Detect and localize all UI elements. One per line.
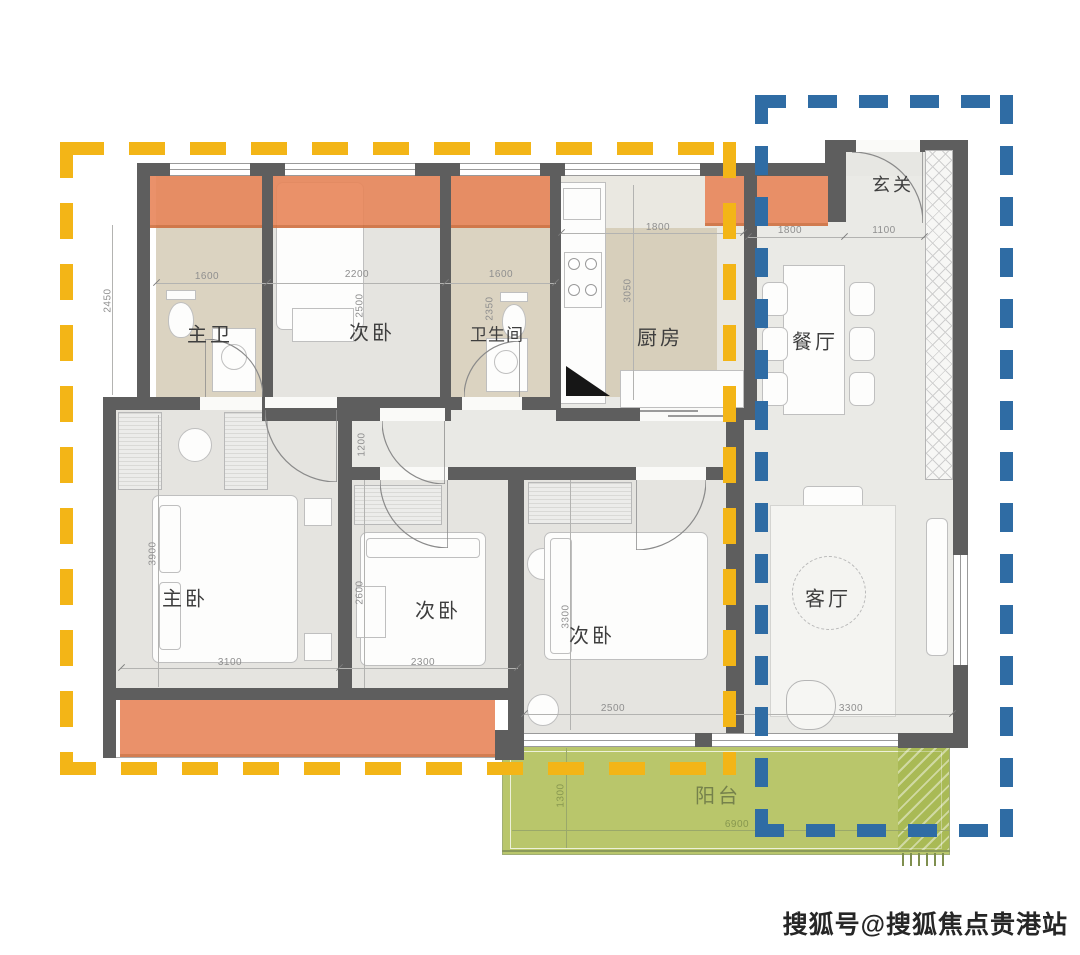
bedroomright-door-arc — [636, 480, 706, 550]
blue-zone-right-edge — [1000, 95, 1013, 837]
label-kitchen: 厨房 — [637, 322, 683, 351]
living-sofa — [926, 518, 948, 656]
bedroom-right-washer-2 — [527, 694, 559, 726]
wall-left-jog — [103, 397, 150, 410]
label-master-bath: 主卫 — [187, 319, 233, 348]
dim-living-width: 3300 — [826, 703, 876, 714]
dim-kitchen-height: 3050 — [623, 266, 634, 316]
stove-burner-1 — [568, 258, 580, 270]
blue-zone-top-edge — [757, 95, 1013, 108]
dim-entry-width-2: 1100 — [859, 225, 909, 236]
window-bedroomright-balcony — [524, 733, 695, 747]
master-bath-toilet-tank — [166, 290, 196, 300]
wall-left-main — [103, 410, 116, 758]
bedroommid-door-arc — [380, 480, 448, 548]
bathroom-door-opening — [462, 397, 522, 410]
blue-zone-left-edge — [755, 95, 768, 837]
orange-band-bottom — [120, 697, 495, 757]
masterbed-door-arc — [265, 410, 337, 482]
label-entry: 玄关 — [872, 171, 914, 197]
yellow-zone-right-edge — [723, 142, 736, 775]
label-balcony: 阳台 — [695, 780, 741, 809]
wall-bedroommid-bedroomright — [508, 467, 524, 690]
dim-masterbed-width: 3100 — [205, 657, 255, 668]
dim-entry-width-1: 1800 — [765, 225, 815, 236]
dining-chair-6 — [849, 372, 875, 406]
bedroomtop-door-arc — [382, 421, 445, 484]
dim-kitchen-width: 1800 — [633, 222, 683, 233]
wall-left-top — [137, 163, 150, 397]
yellow-zone-left-edge — [60, 142, 73, 775]
dim-bathroom-width: 1600 — [476, 269, 526, 280]
wall-master-bedroommid — [338, 408, 352, 690]
dim-masterbed-height: 3900 — [148, 529, 159, 579]
dim-line-entry — [748, 237, 925, 238]
blue-zone-bottom-edge — [755, 824, 1013, 837]
master-chair — [178, 428, 212, 462]
bay-window-outer-line — [103, 757, 505, 758]
yellow-zone-top-edge — [68, 142, 736, 155]
orange-band-top-left — [150, 170, 556, 228]
bedroom-right-wardrobe — [528, 482, 632, 524]
entry-closet — [925, 150, 953, 480]
wall-bottom-living-right — [898, 733, 968, 748]
dining-chair-4 — [849, 282, 875, 316]
bedroomright-door-opening — [636, 467, 706, 480]
dim-hallway-width: 1200 — [357, 420, 368, 470]
dim-line-bottom-living — [524, 714, 953, 715]
label-bedroom-top: 次卧 — [349, 317, 395, 346]
floor-plan-canvas: 1600 2200 1600 1800 1800 1100 3100 2300 … — [0, 0, 1080, 955]
label-bedroom-right: 次卧 — [569, 620, 615, 649]
master-bed-pillow-1 — [159, 505, 181, 573]
wall-bottom-bedrooms — [116, 688, 518, 700]
wall-pillar-bottom-mid — [695, 733, 712, 747]
dim-masterbath-width: 1600 — [182, 271, 232, 282]
master-nightstand-1 — [304, 498, 332, 526]
stove-burner-3 — [568, 284, 580, 296]
dim-balcony-depth: 1300 — [556, 771, 567, 821]
stove-burner-2 — [585, 258, 597, 270]
yellow-zone-bottom-edge — [60, 762, 736, 775]
label-master-bedroom: 主卧 — [162, 583, 208, 612]
balcony-comb-ticks — [902, 853, 950, 866]
kitchen-slider-line-2 — [668, 415, 726, 417]
wall-pillar-balcony-left — [495, 730, 524, 760]
window-bathroom-top — [460, 163, 540, 176]
window-masterbath-top — [170, 163, 250, 176]
dim-masterbath-height: 2450 — [103, 276, 114, 326]
slider-living-balcony — [712, 733, 898, 747]
masterbath-door-arc — [205, 339, 263, 397]
label-bathroom: 卫生间 — [470, 321, 524, 346]
dim-bedroommid-height: 2600 — [355, 568, 366, 618]
master-wardrobe-left — [118, 412, 162, 490]
label-bedroom-mid: 次卧 — [415, 595, 461, 624]
kitchen-slider-line-1 — [640, 410, 698, 412]
dim-bedroomright-width: 2500 — [588, 703, 638, 714]
dim-bedroommid-width: 2300 — [398, 657, 448, 668]
watermark-text: 搜狐号@搜狐焦点贵港站 — [783, 905, 1068, 941]
window-bedroomtop-top — [285, 163, 415, 176]
kitchen-sink — [563, 188, 601, 220]
bathroom-toilet-tank — [500, 292, 528, 302]
master-nightstand-2 — [304, 633, 332, 661]
label-living: 客厅 — [805, 583, 851, 612]
masterbath-door-opening — [200, 397, 262, 410]
dim-line-kitchen — [561, 233, 744, 234]
dim-line-bottom-bedrooms — [121, 668, 518, 669]
window-kitchen-top — [565, 163, 700, 176]
balcony-bottom-line — [502, 850, 950, 852]
bathroom-door-arc — [464, 341, 520, 397]
dim-bedroomtop-width: 2200 — [332, 269, 382, 280]
wall-entry-pillar — [828, 152, 846, 222]
dining-chair-5 — [849, 327, 875, 361]
stove-burner-4 — [585, 284, 597, 296]
master-wardrobe-right — [224, 412, 268, 490]
bedroom-top-desk — [292, 308, 354, 342]
entry-door-opening — [856, 140, 920, 152]
wall-masterbath-bedroomtop — [262, 176, 273, 397]
window-living-right — [953, 555, 968, 665]
label-dining: 餐厅 — [792, 326, 838, 355]
bedroomtop-door-opening — [380, 408, 445, 421]
wall-bedroomtop-bathroom — [440, 176, 451, 397]
